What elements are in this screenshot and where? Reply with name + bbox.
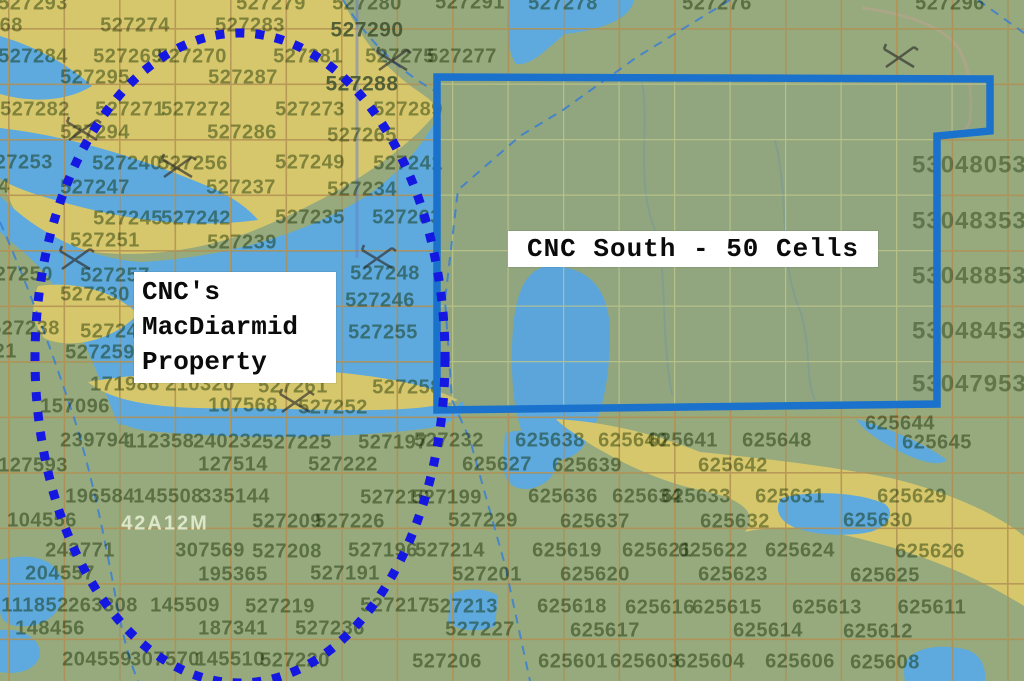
claim-number: 527230: [60, 283, 130, 305]
claim-number: 625642: [698, 454, 768, 476]
claim-number: 127514: [198, 453, 268, 475]
claim-number: 111852: [1, 594, 69, 616]
claim-number: 527252: [298, 396, 368, 418]
macdiarmid-label-line1: CNC's: [142, 275, 336, 310]
map-sheet-label: 42A12M: [121, 512, 209, 534]
claim-number: 527283: [215, 14, 285, 36]
claim-number: 527242: [161, 207, 231, 229]
claim-number: 527209: [252, 510, 322, 532]
claim-number: 625615: [692, 596, 762, 618]
claim-number: 625630: [843, 509, 913, 531]
claim-number: 625620: [560, 563, 630, 585]
claim-number: 625633: [661, 485, 731, 507]
claim-number: 527249: [275, 151, 345, 173]
claim-number: 625603: [610, 650, 680, 672]
claim-number: 527229: [448, 509, 518, 531]
claim-number: 127593: [0, 454, 68, 476]
claim-number: 527290: [330, 19, 403, 42]
claim-number: 527227: [445, 618, 515, 640]
claim-number: 527277: [427, 45, 497, 67]
claim-number: 527289: [373, 98, 443, 120]
claim-number: 527225: [262, 431, 332, 453]
claim-number: 527273: [275, 98, 345, 120]
claim-number: 625639: [552, 454, 622, 476]
claim-number: 527286: [207, 121, 277, 143]
claim-number: 527236: [295, 617, 365, 639]
claim-number: 195365: [198, 563, 268, 585]
claim-number: 527226: [315, 510, 385, 532]
claim-number: 527268: [0, 14, 23, 36]
cnc-south-label: CNC South - 50 Cells: [508, 231, 878, 267]
claim-number: 145508: [133, 485, 203, 507]
claim-number: 527213: [428, 595, 498, 617]
claim-number: 625631: [755, 485, 825, 507]
claim-number: 527274: [100, 14, 170, 36]
claim-number: 527258: [372, 376, 442, 398]
claim-number: 107568: [208, 394, 278, 416]
claim-number: 112358: [126, 430, 195, 452]
claim-number: 240232: [193, 430, 263, 452]
claim-number: 625638: [515, 429, 585, 451]
claim-number: 625624: [765, 539, 835, 561]
claim-number: 527191: [310, 562, 380, 584]
claim-number: 527238: [0, 317, 60, 339]
claim-number: 625629: [877, 485, 947, 507]
claim-number: 527248: [350, 262, 420, 284]
claim-number: 527269: [93, 45, 163, 67]
claim-number: 625619: [532, 539, 602, 561]
macdiarmid-label-line2: MacDiarmid: [142, 310, 336, 345]
claim-number: 527208: [252, 540, 322, 562]
claim-number: 527287: [208, 66, 278, 88]
claim-number: 527263: [372, 206, 442, 228]
claim-number: 625614: [733, 619, 803, 641]
claim-number: 527272: [161, 98, 231, 120]
claim-number: 527235: [275, 206, 345, 228]
macdiarmid-label-line3: Property: [142, 345, 336, 380]
claim-number: 625612: [843, 620, 913, 642]
claim-number: 625636: [528, 485, 598, 507]
claim-number: 625625: [850, 564, 920, 586]
claim-number: 527201: [452, 563, 522, 585]
claim-number: 527219: [245, 595, 315, 617]
claim-number: 625626: [895, 540, 965, 562]
claim-number: 204559: [62, 648, 132, 670]
claim-number: 527234: [327, 178, 397, 200]
claim-number: 243771: [45, 539, 115, 561]
claim-number: 625627: [462, 453, 532, 475]
claim-number: 625637: [560, 510, 630, 532]
claim-number: 625613: [792, 596, 862, 618]
claim-number: 145510: [195, 648, 265, 670]
claim-number: 625645: [902, 431, 972, 453]
claim-number: 527251: [70, 229, 140, 251]
claim-number: 527237: [206, 176, 276, 198]
claim-number: 527279: [236, 0, 306, 14]
claim-number: 527222: [308, 453, 378, 475]
claim-number: 148456: [15, 617, 85, 639]
claim-number: 527245: [93, 207, 163, 229]
claim-number: 527240: [92, 152, 162, 174]
claim-number: 527246: [345, 289, 415, 311]
claim-number: 527255: [348, 321, 418, 343]
claim-number: 625641: [648, 429, 718, 451]
claim-number: 625623: [698, 563, 768, 585]
claim-number: 625632: [700, 510, 770, 532]
claim-number: 527282: [0, 98, 70, 120]
claim-number: 187341: [198, 617, 268, 639]
claim-number: 527196: [348, 539, 418, 561]
claim-number: 527293: [0, 0, 68, 14]
claim-number: 527276: [682, 0, 752, 14]
claim-number: 625606: [765, 650, 835, 672]
claim-number: 527295: [60, 66, 130, 88]
claim-number: 625648: [742, 429, 812, 451]
claim-number: 527284: [0, 45, 68, 67]
claim-number: 527253: [0, 151, 53, 173]
claim-number: 527259: [65, 341, 135, 363]
claim-number: 527280: [332, 0, 402, 14]
claim-number: 625622: [678, 539, 748, 561]
claim-number: 625608: [850, 651, 920, 673]
claim-number: 625617: [570, 619, 640, 641]
claim-number: 527296: [915, 0, 985, 14]
macdiarmid-label: CNC's MacDiarmid Property: [134, 272, 336, 383]
claim-number: 157096: [40, 395, 110, 417]
claim-number: 145509: [150, 594, 220, 616]
claim-number: 527206: [412, 650, 482, 672]
claim-number: 527232: [414, 429, 484, 451]
claim-number: 335144: [200, 485, 270, 507]
claim-number: 527239: [207, 231, 277, 253]
claim-number: 527278: [528, 0, 598, 14]
claim-number: 625611: [898, 596, 967, 618]
claim-number: 625618: [537, 595, 607, 617]
claim-number: 625604: [675, 650, 745, 672]
claim-number: 196584: [65, 485, 135, 507]
claim-number: 307569: [175, 539, 245, 561]
claim-number: 527214: [415, 539, 485, 561]
claim-number: 625601: [538, 650, 608, 672]
claim-number: 625616: [625, 596, 695, 618]
claim-number: 239794: [60, 429, 130, 451]
claim-number: 527291: [435, 0, 505, 13]
claim-number: 527224: [0, 175, 10, 197]
claim-number: 527221: [0, 340, 17, 362]
claims-map: 5272935272795272805272915272785272765272…: [0, 0, 1024, 681]
